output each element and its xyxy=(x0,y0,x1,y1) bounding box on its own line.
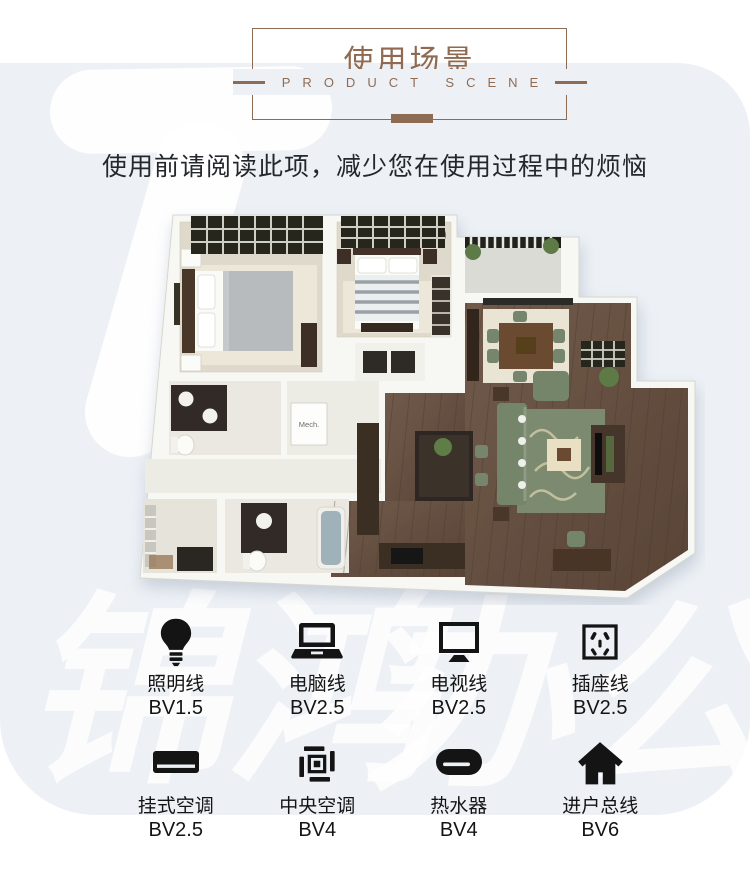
wire-name: 挂式空调 xyxy=(138,797,214,818)
wire-spec: BV2.5 xyxy=(432,696,486,721)
wire-spec: BV2.5 xyxy=(573,696,627,721)
wire-name: 中央空调 xyxy=(279,797,355,818)
section-subtitle: PRODUCT SCENE xyxy=(270,75,550,90)
intro-text: 使用前请阅读此项，减少您在使用过程中的烦恼 xyxy=(0,147,750,183)
wire-spec: BV2.5 xyxy=(149,818,203,843)
mech-closet-label: Mech. xyxy=(299,420,319,429)
subtitle-left-dash xyxy=(233,81,265,84)
floor-plan-image: Mech. xyxy=(85,205,705,605)
wire-name: 照明线 xyxy=(147,675,204,696)
wire-name: 电脑线 xyxy=(289,675,346,696)
section-subtitle-row: PRODUCT SCENE xyxy=(233,69,587,95)
bulb-icon xyxy=(150,614,202,670)
tv-icon xyxy=(431,614,487,670)
wire-spec: BV2.5 xyxy=(290,696,344,721)
wire-spec: BV6 xyxy=(581,818,619,843)
wire-legend-row-1: 照明线 BV1.5 电脑线 BV2.5 电视线 BV2.5 xyxy=(105,614,671,721)
wire-spec: BV4 xyxy=(440,818,478,843)
wire-spec: BV4 xyxy=(298,818,336,843)
wire-name: 进户总线 xyxy=(562,797,638,818)
wire-item-central-ac: 中央空调 BV4 xyxy=(247,736,389,843)
wire-item-socket: 插座线 BV2.5 xyxy=(530,614,672,721)
wire-item-wall-ac: 挂式空调 BV2.5 xyxy=(105,736,247,843)
subtitle-right-dash xyxy=(555,81,587,84)
wire-item-tv: 电视线 BV2.5 xyxy=(388,614,530,721)
wall-ac-icon xyxy=(148,736,204,792)
bedroom-1 xyxy=(174,249,317,371)
wire-spec: BV1.5 xyxy=(149,696,203,721)
wire-name: 热水器 xyxy=(430,797,487,818)
water-heater-icon xyxy=(431,736,487,792)
bedroom-1-window xyxy=(191,216,323,254)
wire-item-main-line: 进户总线 BV6 xyxy=(530,736,672,843)
wire-legend-row-2: 挂式空调 BV2.5 中央空调 BV4 xyxy=(105,736,671,843)
wire-name: 电视线 xyxy=(430,675,487,696)
wire-name: 插座线 xyxy=(572,675,629,696)
bedroom-2-window xyxy=(341,216,445,248)
house-icon xyxy=(574,736,626,792)
wire-item-lighting: 照明线 BV1.5 xyxy=(105,614,247,721)
laptop-icon xyxy=(289,614,345,670)
socket-icon xyxy=(574,614,626,670)
wire-item-computer: 电脑线 BV2.5 xyxy=(247,614,389,721)
title-accent-bar xyxy=(391,114,433,123)
central-ac-icon xyxy=(291,736,343,792)
wire-item-water-heater: 热水器 BV4 xyxy=(388,736,530,843)
